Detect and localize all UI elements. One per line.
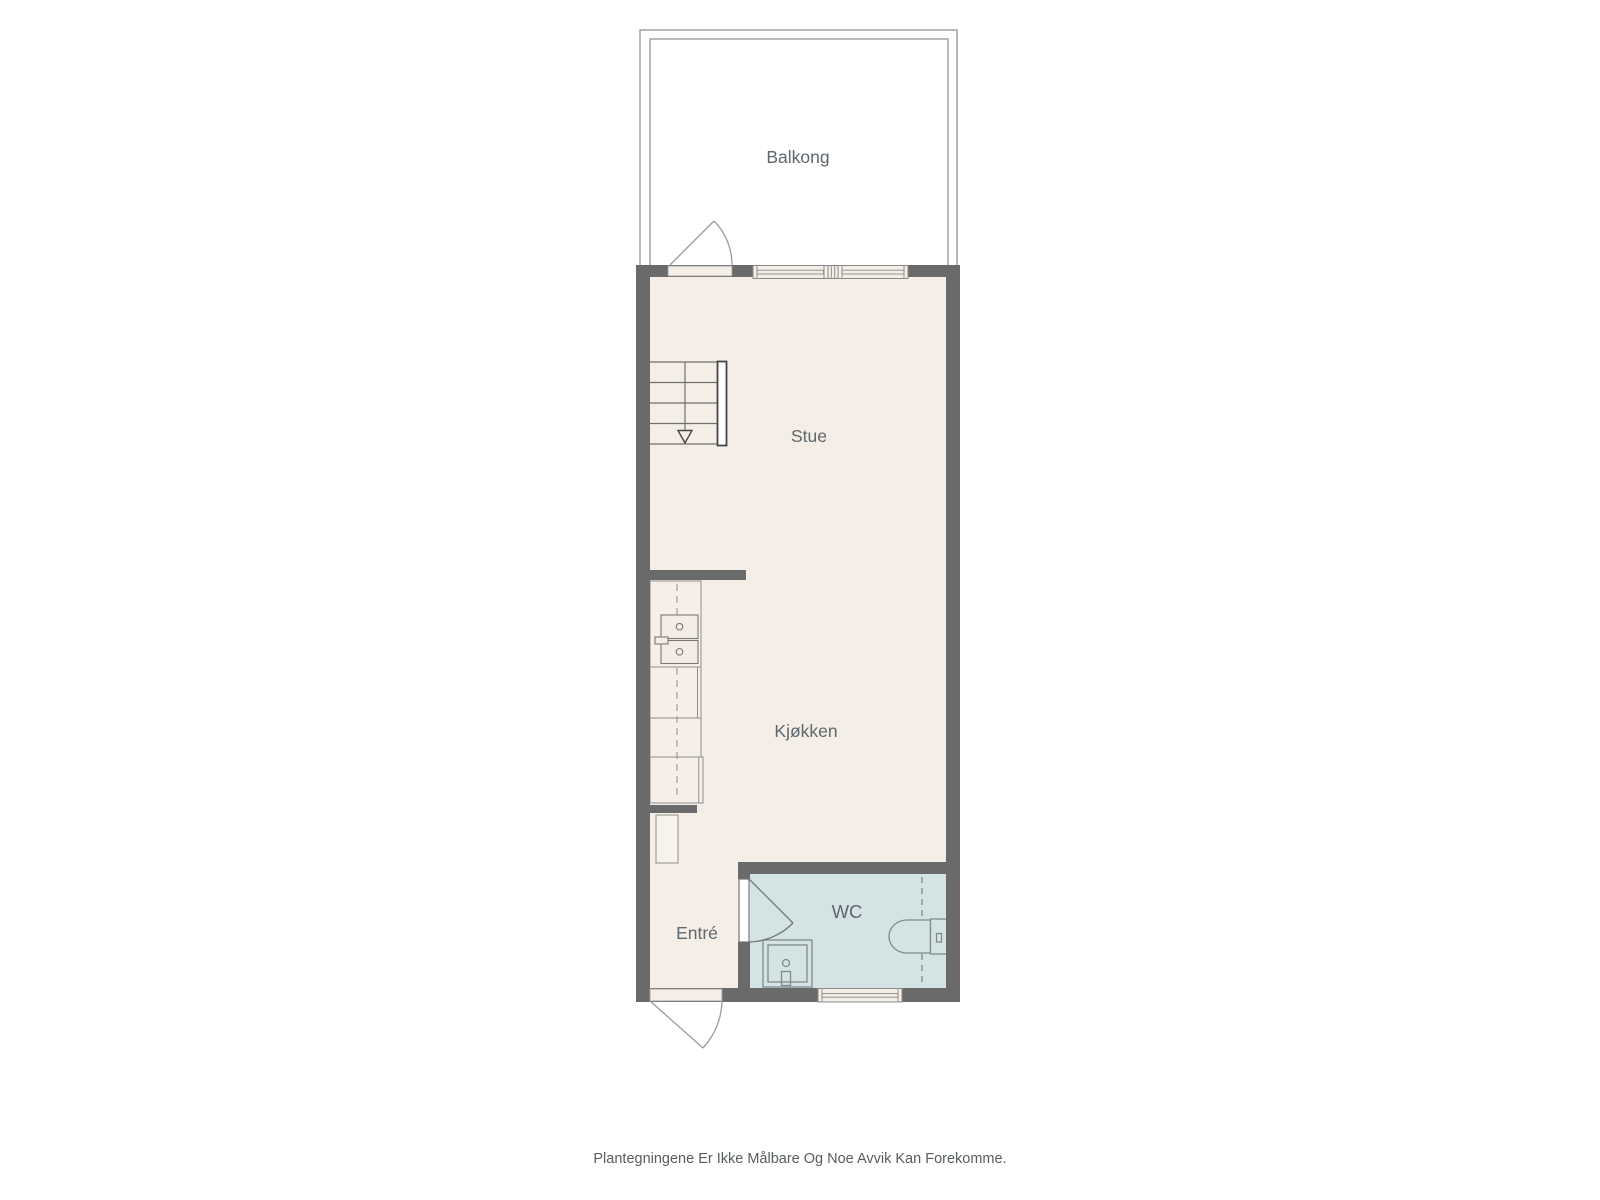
- wc-wall-top: [738, 862, 946, 874]
- window-top-2: [838, 266, 908, 279]
- door-swing-arc: [703, 1001, 722, 1048]
- wc-wall-left-upper: [738, 862, 750, 879]
- disclaimer-text: Plantegningene Er Ikke Målbare Og Noe Av…: [593, 1151, 1006, 1167]
- toilet-bowl: [889, 920, 931, 953]
- room-label-kjokken: Kjøkken: [774, 721, 837, 741]
- stair-railing: [718, 362, 727, 446]
- window-mullion: [828, 266, 838, 279]
- door-sill: [668, 266, 732, 276]
- room-label-wc: WC: [832, 901, 863, 922]
- room-label-balkong: Balkong: [766, 147, 829, 167]
- sink-bowl: [661, 615, 698, 639]
- toilet-icon: [889, 919, 948, 954]
- entre-closet: [656, 815, 678, 863]
- floor-plan-page: Balkong Stue Kjøkken Entré WC Plantegnin…: [0, 0, 1600, 1200]
- wc-wall-left-lower: [738, 942, 750, 988]
- floor-plan-svg: Balkong Stue Kjøkken Entré WC Plantegnin…: [0, 0, 1600, 1200]
- room-label-stue: Stue: [791, 426, 827, 446]
- sink-faucet: [655, 637, 668, 644]
- window-bottom: [818, 989, 902, 1003]
- window-top-1: [753, 266, 828, 279]
- window-frame: [838, 266, 908, 279]
- window-frame: [818, 989, 902, 1003]
- exterior-wall-right: [946, 265, 960, 1002]
- interior-wall-stub-kitchen: [636, 570, 746, 580]
- door-sill: [650, 989, 722, 1001]
- door-leaf-line: [650, 1001, 703, 1048]
- window-frame: [753, 266, 828, 279]
- interior-wall-stub-entre: [636, 805, 697, 813]
- exterior-wall-left: [636, 265, 650, 1002]
- wc-door-leaf: [739, 879, 749, 942]
- room-label-entre: Entré: [676, 923, 718, 943]
- kitchen-counter: [650, 581, 703, 803]
- mullion-frame: [828, 266, 838, 279]
- toilet-tank: [931, 919, 948, 954]
- entrance-door: [650, 989, 722, 1048]
